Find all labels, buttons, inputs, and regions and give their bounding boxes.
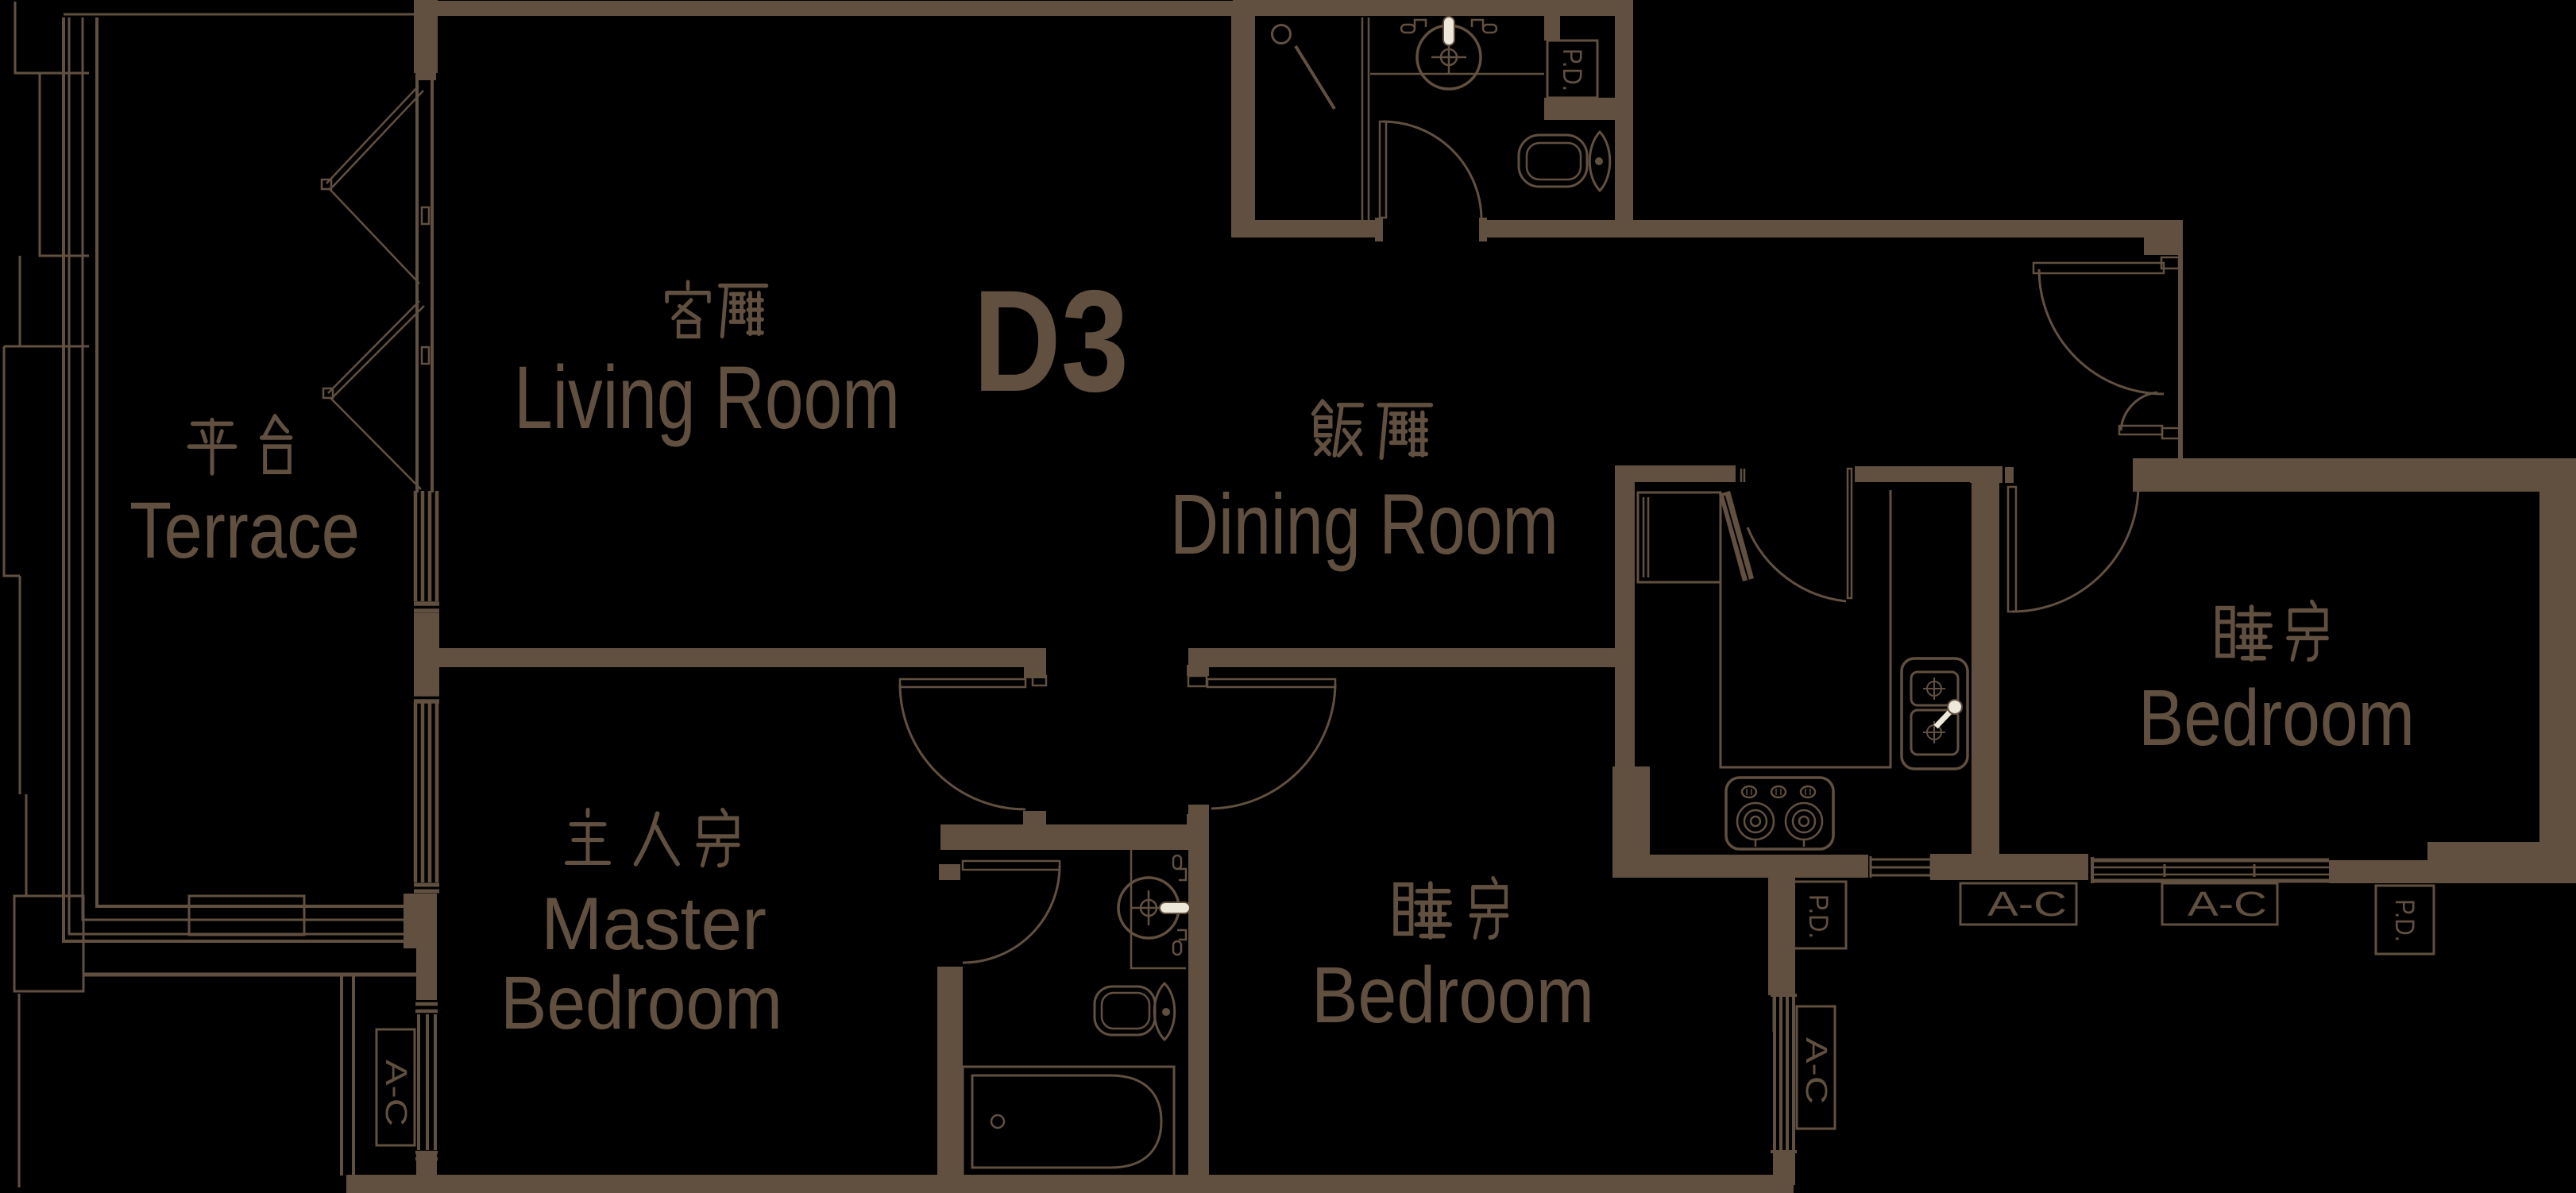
- svg-text:P.D.: P.D.: [1557, 48, 1587, 91]
- svg-text:Living Room: Living Room: [514, 348, 900, 447]
- svg-text:Bedroom: Bedroom: [2138, 674, 2415, 763]
- svg-text:A-C: A-C: [1987, 885, 2067, 924]
- svg-text:Terrace: Terrace: [129, 486, 360, 575]
- svg-text:A-C: A-C: [2188, 885, 2267, 924]
- svg-text:P.D.: P.D.: [1803, 894, 1833, 939]
- svg-text:Bedroom: Bedroom: [1311, 951, 1594, 1040]
- svg-text:A-C: A-C: [1799, 1037, 1833, 1104]
- svg-text:D3: D3: [973, 260, 1129, 422]
- svg-text:A-C: A-C: [379, 1060, 412, 1126]
- svg-text:Bedroom: Bedroom: [500, 961, 782, 1045]
- svg-text:Master: Master: [541, 882, 767, 965]
- svg-text:Dining Room: Dining Room: [1170, 476, 1558, 572]
- svg-text:P.D.: P.D.: [2389, 899, 2420, 942]
